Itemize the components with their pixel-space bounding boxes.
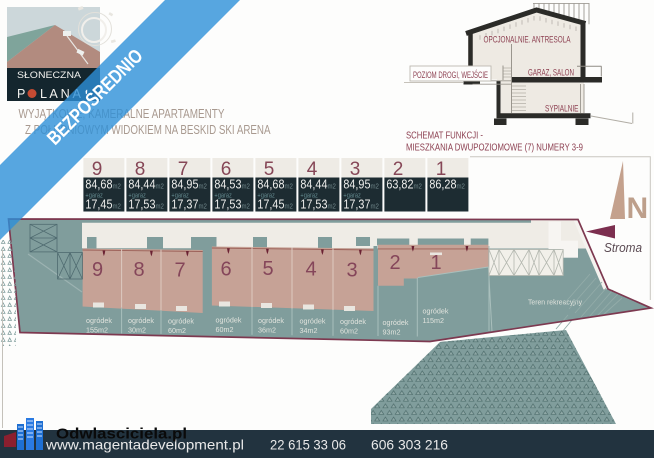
svg-text:155m2: 155m2 <box>86 326 108 335</box>
svg-text:SŁONECZNA: SŁONECZNA <box>17 70 82 81</box>
svg-text:60m2: 60m2 <box>340 327 358 336</box>
svg-text:1: 1 <box>430 252 441 274</box>
svg-text:ogródek: ogródek <box>86 316 112 325</box>
svg-text:93m2: 93m2 <box>383 328 401 337</box>
svg-text:60m2: 60m2 <box>216 325 234 334</box>
svg-text:ogródek: ogródek <box>216 316 242 325</box>
svg-text:ogródek: ogródek <box>423 307 449 316</box>
svg-text:ogródek: ogródek <box>300 317 326 326</box>
svg-text:SYPIALNIE: SYPIALNIE <box>545 104 579 115</box>
svg-text:OPCJONALNIE. ANTRESOLA: OPCJONALNIE. ANTRESOLA <box>484 35 571 46</box>
svg-text:Teren rekreacyjny: Teren rekreacyjny <box>528 298 582 307</box>
svg-text:ogródek: ogródek <box>168 317 194 326</box>
svg-text:30m2: 30m2 <box>128 326 146 335</box>
svg-text:7: 7 <box>174 260 185 282</box>
svg-text:ogródek: ogródek <box>340 317 366 326</box>
svg-text:Stroma: Stroma <box>604 240 642 255</box>
svg-text:SCHEMAT FUNKCJI -: SCHEMAT FUNKCJI - <box>406 131 483 142</box>
svg-text:9: 9 <box>92 259 103 281</box>
svg-text:P: P <box>17 87 25 101</box>
svg-text:ogródek: ogródek <box>258 316 284 325</box>
svg-text:MIESZKANIA DWUPOZIOMOWE (7) NU: MIESZKANIA DWUPOZIOMOWE (7) NUMERY 3-9 <box>406 143 583 154</box>
svg-text:34m2: 34m2 <box>300 326 318 335</box>
svg-text:60m2: 60m2 <box>168 326 186 335</box>
svg-text:606 303 216: 606 303 216 <box>371 437 448 453</box>
svg-text:115m2: 115m2 <box>423 316 444 325</box>
svg-text:Odwlasciciela.pl: Odwlasciciela.pl <box>56 427 187 443</box>
svg-text:POZIOM DROGI, WEJŚCIE: POZIOM DROGI, WEJŚCIE <box>413 69 488 80</box>
svg-text:N: N <box>627 192 649 225</box>
svg-text:3: 3 <box>346 260 357 282</box>
svg-text:ogródek: ogródek <box>383 318 409 327</box>
svg-text:ogródek: ogródek <box>128 316 154 325</box>
svg-text:5: 5 <box>262 258 273 280</box>
svg-text:22 615 33 06: 22 615 33 06 <box>270 437 346 453</box>
svg-text:GARAZ, SALON: GARAZ, SALON <box>528 68 574 79</box>
svg-text:36m2: 36m2 <box>258 326 276 335</box>
svg-text:6: 6 <box>220 259 231 281</box>
svg-text:4: 4 <box>305 259 316 281</box>
svg-text:2: 2 <box>389 252 400 274</box>
svg-text:8: 8 <box>133 259 144 281</box>
